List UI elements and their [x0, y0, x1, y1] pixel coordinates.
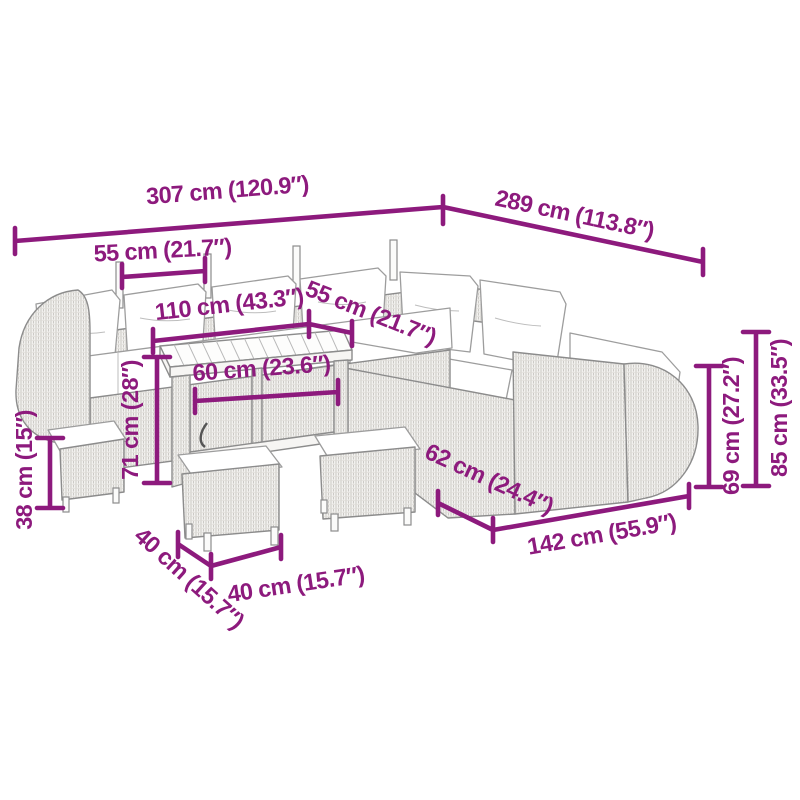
- dimension-armrest-height: 69 cm (27.2″): [696, 357, 744, 495]
- product-dimension-diagram: 307 cm (120.9″) 289 cm (113.8″) 55 cm (2…: [0, 0, 800, 800]
- stool-center: [178, 446, 282, 551]
- dimension-label-sofa-length: 142 cm (55.9″): [525, 508, 678, 559]
- dimension-label-stool-width: 40 cm (15.7″): [226, 561, 366, 607]
- right-armrest: [624, 363, 698, 502]
- dimension-label-stool-height: 38 cm (15″): [11, 410, 37, 530]
- dimension-label-backrest-height: 85 cm (33.5″): [766, 339, 792, 477]
- dimension-label-armrest-height: 69 cm (27.2″): [718, 357, 744, 495]
- diagram-svg: 307 cm (120.9″) 289 cm (113.8″) 55 cm (2…: [0, 0, 800, 800]
- dimension-total-depth: 289 cm (113.8″): [443, 185, 703, 275]
- dimension-label-total-width: 307 cm (120.9″): [145, 171, 309, 210]
- stool-left: [48, 421, 127, 512]
- stool-right: [315, 427, 420, 531]
- dimension-backrest-height: 85 cm (33.5″): [743, 332, 792, 486]
- dimension-stool-width: 40 cm (15.7″): [211, 535, 366, 607]
- dimension-label-table-height: 71 cm (28″): [117, 360, 143, 480]
